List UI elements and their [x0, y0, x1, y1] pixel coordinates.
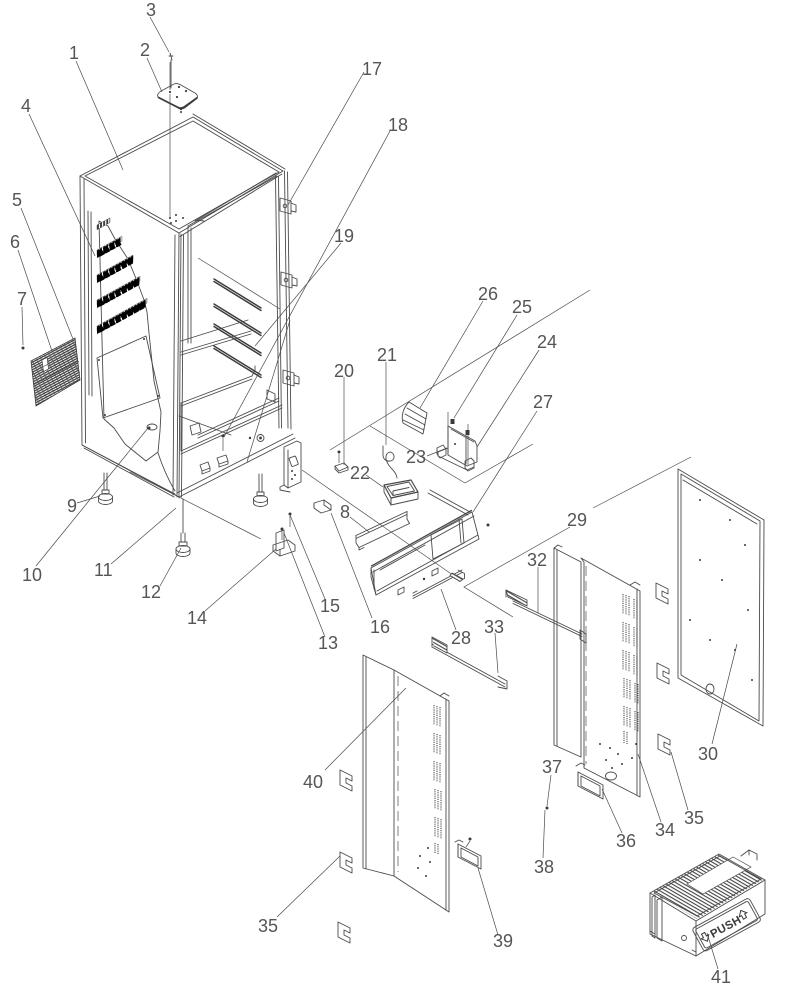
svg-text:34: 34 — [655, 820, 675, 840]
svg-text:22: 22 — [350, 463, 370, 483]
svg-text:27: 27 — [533, 392, 553, 412]
svg-text:40: 40 — [303, 772, 323, 792]
svg-text:11: 11 — [94, 560, 113, 580]
svg-text:30: 30 — [698, 744, 718, 764]
svg-text:37: 37 — [542, 757, 562, 777]
svg-text:15: 15 — [320, 596, 340, 616]
svg-text:1: 1 — [69, 43, 79, 63]
svg-text:2: 2 — [140, 40, 150, 60]
svg-text:9: 9 — [67, 496, 77, 516]
svg-text:5: 5 — [12, 190, 22, 210]
svg-text:18: 18 — [388, 115, 408, 135]
svg-text:24: 24 — [537, 332, 557, 352]
svg-text:6: 6 — [10, 232, 20, 252]
svg-text:36: 36 — [616, 831, 636, 851]
svg-text:25: 25 — [512, 297, 532, 317]
svg-text:4: 4 — [21, 96, 31, 116]
svg-text:28: 28 — [451, 628, 471, 648]
svg-text:13: 13 — [318, 633, 338, 653]
svg-text:33: 33 — [484, 617, 504, 637]
svg-text:7: 7 — [17, 289, 27, 309]
svg-text:17: 17 — [362, 59, 382, 79]
svg-text:12: 12 — [141, 582, 161, 602]
svg-text:41: 41 — [711, 967, 731, 987]
svg-text:35: 35 — [258, 916, 278, 936]
svg-text:16: 16 — [370, 617, 390, 637]
svg-text:39: 39 — [493, 931, 513, 951]
svg-text:14: 14 — [187, 608, 207, 628]
svg-text:26: 26 — [478, 284, 498, 304]
svg-text:10: 10 — [22, 565, 42, 585]
svg-text:29: 29 — [567, 510, 587, 530]
svg-text:3: 3 — [146, 0, 156, 20]
svg-text:21: 21 — [377, 345, 397, 365]
svg-text:8: 8 — [340, 502, 350, 522]
svg-text:38: 38 — [534, 857, 554, 877]
svg-text:32: 32 — [527, 550, 547, 570]
svg-text:23: 23 — [406, 447, 426, 467]
svg-text:35: 35 — [684, 808, 704, 828]
